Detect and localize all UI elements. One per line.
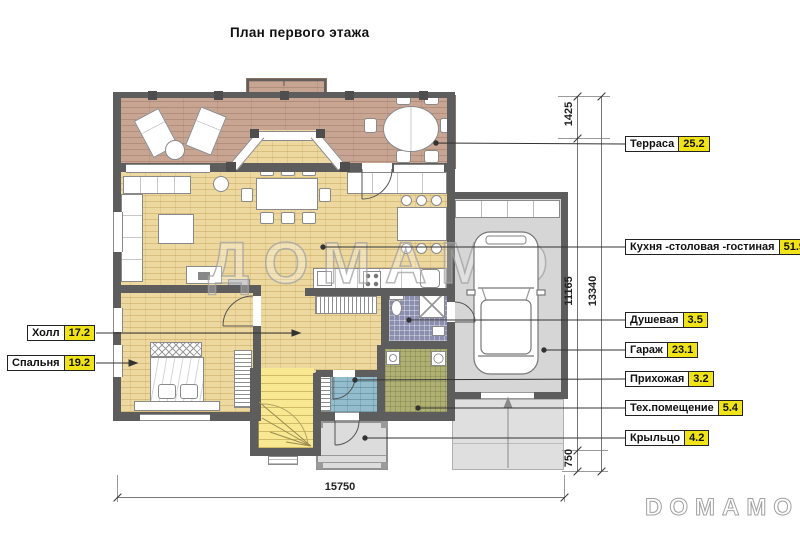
room-name: Кухня -столовая -гостиная [626, 240, 779, 254]
shower-tech-wall [381, 341, 447, 349]
garage-bottom-wall [534, 392, 568, 399]
hallway-door-opening [333, 370, 355, 377]
bar-stool [401, 243, 412, 254]
driveway-apron [452, 399, 564, 470]
room-label-terrace: Терраса 25.2 [625, 136, 710, 152]
terrace-left-wall [113, 92, 121, 168]
room-label-kitchen-living: Кухня -столовая -гостиная 51.9 [625, 239, 800, 255]
bed-bench [134, 401, 220, 411]
bay-post [316, 129, 325, 138]
room-area: 23.1 [667, 343, 697, 357]
plant-pot [213, 176, 229, 192]
terrace-pier [148, 91, 157, 100]
hall-wardrobe [315, 296, 377, 314]
room-label-tech: Тех.помещение 5.4 [625, 400, 743, 416]
dining-table [256, 178, 318, 210]
fireplace-grate [198, 272, 210, 280]
garage-top-wall [447, 192, 568, 199]
garage-bottom-wall [447, 392, 481, 399]
bay-window [257, 131, 318, 141]
bay-post [250, 129, 259, 138]
stairs-bottom-wall [250, 448, 321, 456]
dining-chair [260, 212, 274, 224]
watermark-logo: DOMAMO [645, 494, 799, 522]
stove [363, 271, 381, 289]
room-area: 51.9 [779, 240, 800, 254]
porch-post [381, 462, 388, 469]
garage-door-opening [481, 392, 534, 399]
terrace-pier [214, 91, 223, 100]
room-label-shower: Душевая 3.5 [625, 312, 708, 328]
dining-chair [319, 188, 331, 202]
garage-side-door-opening [447, 302, 455, 322]
house-right-wall [447, 163, 455, 421]
window [394, 164, 444, 173]
room-name: Прихожая [626, 372, 688, 386]
room-area: 19.2 [64, 356, 94, 370]
terrace-dining-table [383, 106, 439, 152]
window [140, 414, 210, 421]
dim-terrace-depth: 1425 [563, 84, 575, 144]
dim-porch-depth: 750 [563, 428, 575, 488]
kitchen-counter-top [347, 172, 447, 194]
shower-left-wall [381, 288, 389, 349]
floor-plan-canvas: План первого этажа [0, 0, 800, 533]
dining-chair [281, 212, 295, 224]
fridge [420, 269, 440, 288]
room-area: 3.5 [683, 313, 707, 327]
room-name: Терраса [626, 137, 678, 151]
room-area: 17.2 [64, 326, 94, 340]
room-name: Душевая [626, 313, 683, 327]
terrace-door-opening [362, 163, 392, 172]
room-area: 3.2 [688, 372, 712, 386]
bar-stool [431, 195, 442, 206]
living-bedroom-wall [113, 285, 261, 293]
bar-stool [416, 195, 427, 206]
bed-pillow [180, 384, 198, 399]
bar-stool [401, 195, 412, 206]
bay-post [226, 162, 236, 172]
tech-left-wall [377, 345, 385, 420]
terrace-pier [280, 91, 289, 100]
kitchen-sink [317, 271, 332, 286]
room-label-porch: Крыльцо 4.2 [625, 430, 709, 446]
dim-total-width: 15750 [300, 481, 380, 493]
window [113, 308, 123, 332]
garage-floor [454, 199, 561, 392]
room-name: Крыльцо [626, 431, 684, 445]
bed-pillow [158, 384, 176, 399]
kitchen-island [397, 207, 447, 241]
room-label-garage: Гараж 23.1 [625, 342, 698, 358]
dimension-line-outer [601, 96, 602, 471]
porch-post [381, 421, 388, 428]
room-label-bedroom: Спальня 19.2 [7, 355, 95, 371]
boiler [431, 351, 446, 366]
terrace-pier [345, 91, 354, 100]
dining-chair [302, 212, 316, 224]
porch-post [316, 462, 323, 469]
coffee-table [158, 214, 194, 244]
dim-house-depth: 11165 [563, 261, 575, 321]
room-name: Холл [28, 326, 64, 340]
room-name: Тех.помещение [626, 401, 718, 415]
bedroom-door-opening [253, 296, 261, 326]
dim-total-depth: 13340 [587, 261, 599, 321]
garage-shelving [455, 200, 560, 218]
room-area: 5.4 [718, 401, 742, 415]
stairs-right-wall [313, 373, 321, 456]
bed-headboard [150, 342, 202, 357]
terrace-side-table [165, 140, 185, 160]
dimension-line-bottom [117, 497, 565, 498]
toilet [391, 300, 402, 316]
window [126, 164, 210, 173]
room-area: 25.2 [678, 137, 708, 151]
sofa-top [123, 176, 191, 194]
sofa-side [121, 194, 143, 282]
room-label-hall: Холл 17.2 [27, 325, 95, 341]
bay-post [340, 162, 350, 172]
page-title: План первого этажа [230, 25, 369, 40]
porch-step [318, 455, 386, 463]
kitchen-hall-wall [305, 288, 447, 296]
terrace-chair [424, 150, 439, 163]
terrace-right-wall [447, 92, 455, 168]
stairs-left-wall [250, 368, 258, 456]
stairs-floor [258, 368, 314, 448]
terrace-chair [364, 118, 377, 133]
terrace-pier [419, 91, 428, 100]
entry-door-opening [335, 412, 359, 421]
exterior-step [268, 456, 298, 465]
bathroom-sink [432, 326, 445, 336]
washing-machine [386, 351, 400, 365]
window [113, 212, 123, 252]
room-area: 4.2 [684, 431, 708, 445]
room-name: Гараж [626, 343, 667, 357]
bar-stool [431, 243, 442, 254]
dimension-line-inner [577, 96, 578, 471]
bar-stool [416, 243, 427, 254]
window [113, 345, 123, 377]
dining-chair [241, 188, 253, 202]
apron-divider [452, 443, 564, 444]
room-label-hallway: Прихожая 3.2 [625, 371, 714, 387]
room-name: Спальня [8, 356, 64, 370]
